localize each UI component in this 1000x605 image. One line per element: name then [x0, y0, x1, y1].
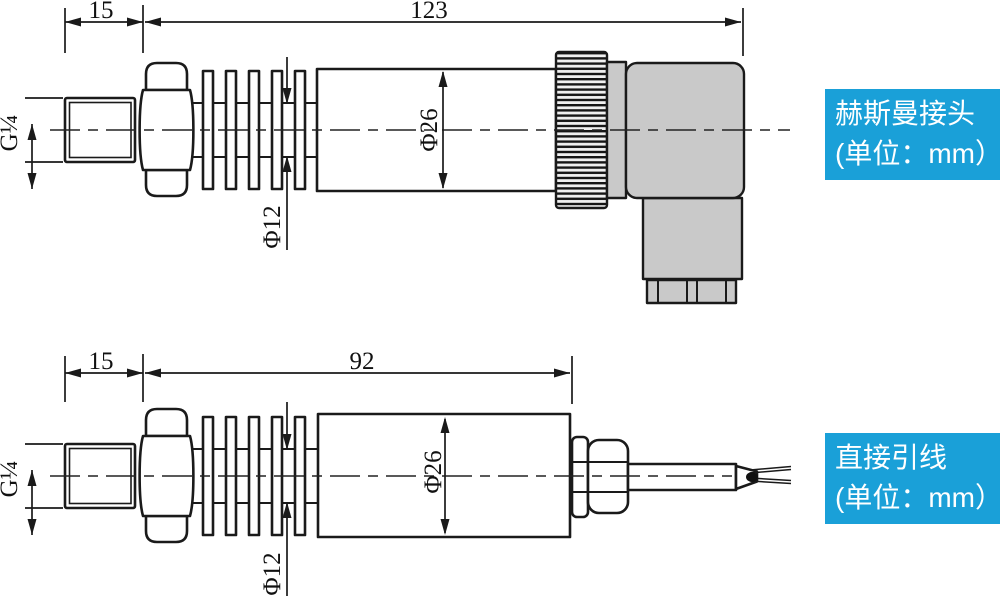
thread-length-value: 15 [89, 0, 114, 24]
body-diameter-value: Φ26 [420, 450, 447, 493]
connector-cable-gland [647, 280, 736, 303]
dimension-thread-spec: G¼ [0, 98, 63, 189]
dimension-thread-length: 15 [65, 348, 143, 402]
body-diameter-value: Φ26 [416, 108, 443, 151]
label-unit-note: (单位：mm） [835, 478, 1000, 518]
pressure-transmitter-dimension-diagram: 15 123 G¼ Φ26 [0, 0, 1000, 605]
direct-lead-variant-drawing: 15 92 G¼ Φ26 [0, 348, 791, 596]
connector-lower-body [643, 198, 742, 279]
cable-gland-nuts [572, 437, 628, 517]
dimension-thread-length: 15 [65, 0, 143, 53]
fin-diameter-value: Φ12 [259, 205, 286, 248]
dimension-total-length: 123 [145, 0, 743, 56]
cable [628, 464, 736, 490]
total-length-value: 123 [410, 0, 448, 24]
label-hirschmann-connector: 赫斯曼接头 (单位：mm） [825, 89, 1000, 180]
label-unit-note: (单位：mm） [835, 134, 1000, 174]
thread-length-value: 15 [89, 348, 114, 375]
fin-diameter-value: Φ12 [259, 552, 286, 595]
thread-spec-value: G¼ [0, 461, 23, 498]
label-title: 直接引线 [835, 438, 1000, 478]
thread-spec-value: G¼ [0, 115, 23, 152]
label-direct-lead: 直接引线 (单位：mm） [825, 433, 1000, 524]
hirschmann-variant-drawing: 15 123 G¼ Φ26 [0, 0, 790, 303]
wire-junction [746, 472, 758, 482]
lead-wires [736, 466, 791, 489]
dimension-thread-spec: G¼ [0, 444, 63, 535]
dimension-total-length: 92 [145, 348, 572, 404]
label-title: 赫斯曼接头 [835, 94, 1000, 134]
total-length-value: 92 [350, 348, 375, 375]
